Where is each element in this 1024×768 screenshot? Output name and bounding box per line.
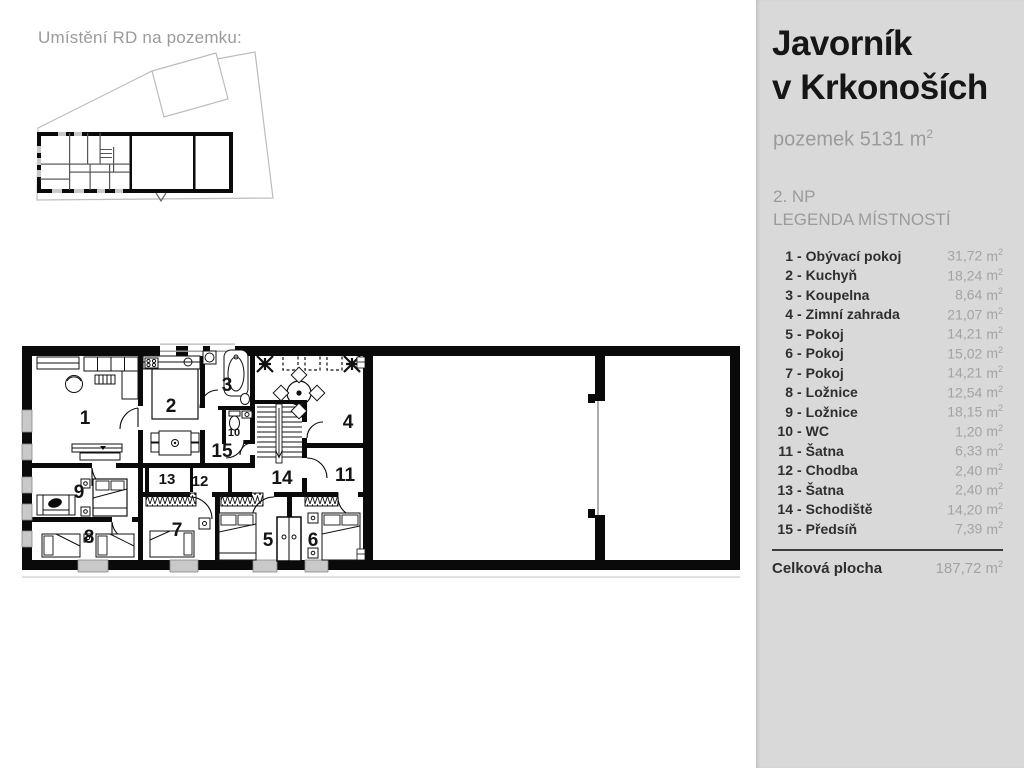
legend-room-area-value: 12,54	[947, 384, 982, 400]
legend-room-area-value: 31,72	[947, 248, 982, 264]
legend-room-area-value: 14,21	[947, 365, 982, 381]
legend-room-area-value: 18,15	[947, 404, 982, 420]
legend-row: 3 - Koupelna 8,64m2	[772, 286, 1003, 306]
plot-area: pozemek 5131 m2	[773, 127, 933, 152]
legend-row: 2 - Kuchyň 18,24m2	[772, 267, 1003, 287]
total-area: 187,72m2	[936, 559, 1003, 577]
legend-row: 9 - Ložnice 18,15m2	[772, 403, 1003, 423]
legend-separator: -	[797, 306, 802, 322]
legend-room-name: Chodba	[806, 462, 955, 478]
legend-room-name: Ložnice	[806, 384, 948, 400]
legend-row: 14 - Schodiště 14,20m2	[772, 501, 1003, 521]
room-label-6: 6	[308, 530, 319, 551]
legend-room-number: 13	[772, 482, 793, 498]
legend-room-name: Pokoj	[806, 326, 948, 342]
legend-room-area: 12,54m2	[947, 384, 1003, 401]
room-label-7: 7	[172, 520, 183, 541]
legend-row: 4 - Zimní zahrada 21,07m2	[772, 306, 1003, 326]
floor-label: 2. NP	[773, 185, 951, 208]
legend-room-number: 14	[772, 501, 793, 517]
legend-room-name: Zimní zahrada	[806, 306, 948, 322]
neighbor-building	[152, 53, 228, 117]
legend-room-number: 1	[772, 248, 793, 264]
legend-room-area-value: 7,39	[955, 521, 982, 537]
legend-row: 11 - Šatna 6,33m2	[772, 442, 1003, 462]
legend-room-number: 2	[772, 267, 793, 283]
legend-room-area: 31,72m2	[947, 247, 1003, 264]
info-panel: Javorník v Krkonoších pozemek 5131 m2 2.…	[756, 0, 1024, 768]
legend-room-number: 15	[772, 521, 793, 537]
legend-divider	[772, 549, 1003, 551]
legend-room-name: Pokoj	[806, 345, 948, 361]
plot-area-text: pozemek 5131 m	[773, 129, 926, 151]
legend-row: 6 - Pokoj 15,02m2	[772, 345, 1003, 365]
legend-separator: -	[797, 287, 802, 303]
legend-room-area-unit: m	[986, 365, 998, 381]
legend-room-area-unit: m	[986, 501, 998, 517]
legend-room-number: 4	[772, 306, 793, 322]
floor-plan-drawing: 1 2 3 4 5 6 7 8 9 10 11 12 13 14 15	[0, 0, 756, 768]
legend-room-number: 12	[772, 462, 793, 478]
room-label-3: 3	[222, 375, 233, 396]
legend-room-name: Šatna	[806, 443, 955, 459]
total-area-sup: 2	[998, 559, 1003, 569]
legend-room-area: 14,21m2	[947, 325, 1003, 342]
legend-room-name: Předsíň	[806, 521, 955, 537]
total-area-value: 187,72	[936, 560, 982, 577]
legend-room-number: 5	[772, 326, 793, 342]
site-plan	[37, 52, 273, 201]
bedroom5-furniture	[219, 513, 256, 560]
room-label-13: 13	[159, 471, 176, 488]
legend-room-area-value: 15,02	[947, 345, 982, 361]
room-label-11: 11	[335, 465, 356, 486]
legend-room-area-unit: m	[986, 462, 998, 478]
page: Umístění RD na pozemku:	[0, 0, 1024, 768]
legend-room-area-sup: 2	[998, 481, 1003, 491]
room-label-12: 12	[192, 473, 209, 490]
room-legend: 1 - Obývací pokoj 31,72m2 2 - Kuchyň 18,…	[772, 247, 1003, 577]
legend-separator: -	[797, 326, 802, 342]
legend-title: LEGENDA MÍSTNOSTÍ	[773, 208, 951, 231]
room-label-8: 8	[84, 527, 95, 548]
legend-room-area-sup: 2	[998, 306, 1003, 316]
legend-room-area-sup: 2	[998, 247, 1003, 257]
legend-room-area: 15,02m2	[947, 345, 1003, 362]
legend-room-area-sup: 2	[998, 267, 1003, 277]
legend-room-name: Pokoj	[806, 365, 948, 381]
legend-room-number: 11	[772, 443, 793, 459]
legend-row: 10 - WC 1,20m2	[772, 423, 1003, 443]
legend-separator: -	[797, 267, 802, 283]
legend-separator: -	[797, 501, 802, 517]
total-label: Celková plocha	[772, 560, 936, 577]
legend-room-area-unit: m	[986, 345, 998, 361]
legend-room-area: 18,24m2	[947, 267, 1003, 284]
room-label-2: 2	[166, 396, 177, 417]
legend-room-area: 14,21m2	[947, 364, 1003, 381]
legend-room-area-sup: 2	[998, 403, 1003, 413]
legend-room-area-sup: 2	[998, 345, 1003, 355]
legend-room-area-sup: 2	[998, 462, 1003, 472]
legend-row: 1 - Obývací pokoj 31,72m2	[772, 247, 1003, 267]
legend-room-area: 1,20m2	[955, 423, 1003, 440]
room-label-4: 4	[343, 412, 354, 433]
legend-room-area-value: 14,21	[947, 326, 982, 342]
legend-room-number: 8	[772, 384, 793, 400]
legend-separator: -	[797, 365, 802, 381]
legend-room-name: Obývací pokoj	[806, 248, 948, 264]
legend-room-area-unit: m	[986, 482, 998, 498]
legend-room-area-value: 2,40	[955, 482, 982, 498]
legend-room-area-unit: m	[986, 326, 998, 342]
legend-room-area-sup: 2	[998, 423, 1003, 433]
legend-room-number: 6	[772, 345, 793, 361]
legend-room-area-unit: m	[986, 404, 998, 420]
room-label-1: 1	[80, 408, 91, 429]
legend-room-area-sup: 2	[998, 501, 1003, 511]
wardrobes	[146, 493, 338, 506]
legend-room-name: Koupelna	[806, 287, 955, 303]
legend-room-area-unit: m	[986, 443, 998, 459]
legend-room-area-unit: m	[986, 521, 998, 537]
legend-room-name: Ložnice	[806, 404, 948, 420]
total-area-unit: m	[985, 560, 998, 577]
room-label-14: 14	[271, 468, 293, 489]
legend-room-area-sup: 2	[998, 286, 1003, 296]
legend-footer: Celková plocha 187,72m2	[772, 549, 1003, 577]
mini-house-rooms	[40, 133, 130, 190]
project-title-line2: v Krkonoších	[772, 66, 988, 110]
project-title: Javorník v Krkonoších	[772, 22, 988, 110]
legend-room-area-value: 21,07	[947, 306, 982, 322]
legend-row: 15 - Předsíň 7,39m2	[772, 520, 1003, 540]
legend-room-area: 14,20m2	[947, 501, 1003, 518]
main-plan: 1 2 3 4 5 6 7 8 9 10 11 12 13 14 15	[22, 344, 740, 578]
project-title-line1: Javorník	[772, 22, 988, 66]
legend-separator: -	[797, 521, 802, 537]
mini-house	[37, 132, 233, 193]
legend-row: 13 - Šatna 2,40m2	[772, 481, 1003, 501]
legend-room-number: 3	[772, 287, 793, 303]
legend-room-area-sup: 2	[998, 384, 1003, 394]
big-room-glass-line	[597, 401, 599, 515]
legend-separator: -	[797, 248, 802, 264]
legend-room-area-unit: m	[986, 267, 998, 283]
legend-room-area-sup: 2	[998, 364, 1003, 374]
room-label-10: 10	[228, 427, 240, 439]
room-label-9: 9	[74, 482, 85, 503]
room-label-5: 5	[263, 530, 274, 551]
mini-entrance-mark	[156, 193, 166, 201]
room-label-15: 15	[211, 441, 233, 462]
legend-room-name: Kuchyň	[806, 267, 948, 283]
legend-room-area-value: 1,20	[955, 423, 982, 439]
legend-room-area-value: 18,24	[947, 267, 982, 283]
legend-room-area: 2,40m2	[955, 462, 1003, 479]
legend-room-area-value: 14,20	[947, 501, 982, 517]
wintergarden-furniture	[257, 355, 360, 419]
legend-row: 8 - Ložnice 12,54m2	[772, 384, 1003, 404]
legend-room-area-sup: 2	[998, 442, 1003, 452]
legend-room-area-unit: m	[986, 423, 998, 439]
legend-room-number: 7	[772, 365, 793, 381]
legend-separator: -	[797, 384, 802, 400]
legend-separator: -	[797, 345, 802, 361]
legend-room-area-unit: m	[986, 287, 998, 303]
legend-room-area-unit: m	[986, 306, 998, 322]
legend-room-area: 2,40m2	[955, 481, 1003, 498]
legend-separator: -	[797, 462, 802, 478]
legend-separator: -	[797, 443, 802, 459]
legend-room-name: Schodiště	[806, 501, 948, 517]
legend-room-area: 18,15m2	[947, 403, 1003, 420]
legend-row: 7 - Pokoj 14,21m2	[772, 364, 1003, 384]
legend-room-area: 6,33m2	[955, 442, 1003, 459]
closet-5-6	[277, 517, 301, 561]
legend-room-area: 21,07m2	[947, 306, 1003, 323]
legend-room-area-value: 8,64	[955, 287, 982, 303]
legend-room-area: 7,39m2	[955, 520, 1003, 537]
legend-separator: -	[797, 423, 802, 439]
legend-room-area: 8,64m2	[955, 286, 1003, 303]
legend-room-number: 9	[772, 404, 793, 420]
legend-room-name: Šatna	[806, 482, 955, 498]
legend-room-area-value: 2,40	[955, 462, 982, 478]
plot-area-sup: 2	[926, 127, 933, 141]
legend-room-area-sup: 2	[998, 520, 1003, 530]
legend-room-area-sup: 2	[998, 325, 1003, 335]
legend-room-name: WC	[806, 423, 955, 439]
legend-row: 12 - Chodba 2,40m2	[772, 462, 1003, 482]
big-room-opening	[595, 401, 605, 515]
legend-separator: -	[797, 404, 802, 420]
legend-room-number: 10	[772, 423, 793, 439]
total-row: Celková plocha 187,72m2	[772, 559, 1003, 577]
legend-room-area-value: 6,33	[955, 443, 982, 459]
legend-room-area-unit: m	[986, 248, 998, 264]
legend-separator: -	[797, 482, 802, 498]
legend-header: 2. NP LEGENDA MÍSTNOSTÍ	[773, 185, 951, 231]
legend-room-area-unit: m	[986, 384, 998, 400]
legend-row: 5 - Pokoj 14,21m2	[772, 325, 1003, 345]
